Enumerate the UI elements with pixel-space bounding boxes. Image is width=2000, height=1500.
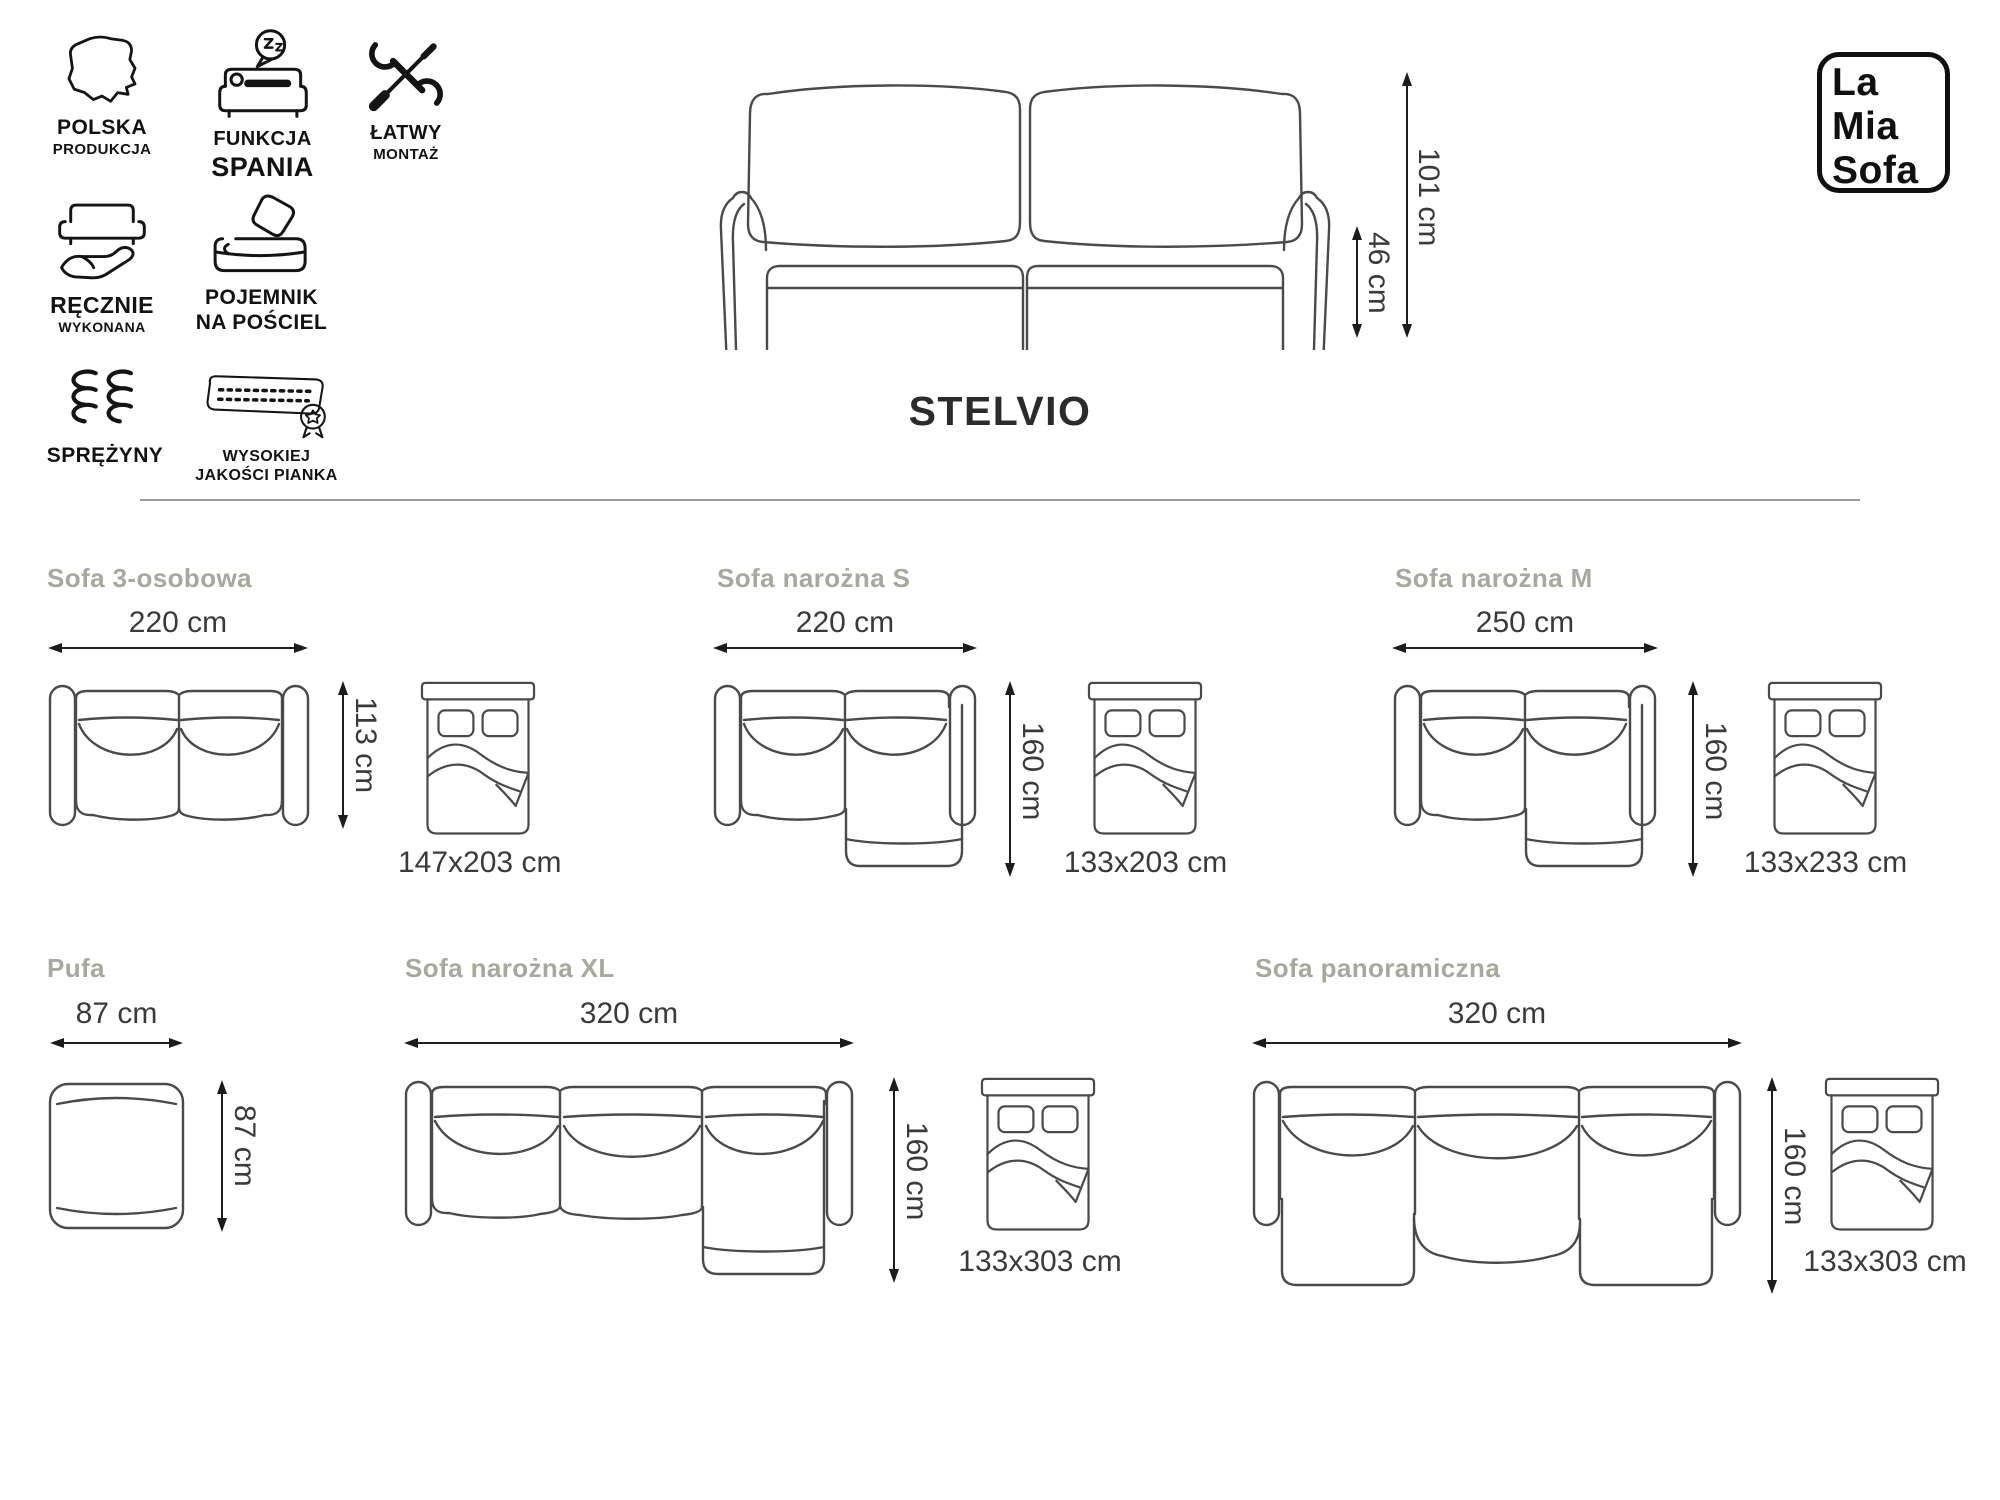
bed-size-label: 147x203 cm xyxy=(398,846,558,880)
sofa-top-view xyxy=(1252,1079,1742,1292)
feature-funkcja-spania: FUNKCJA SPANIA xyxy=(190,26,335,183)
depth-dimension-label: 160 cm xyxy=(1777,1127,1811,1225)
bedding-container-icon xyxy=(207,190,317,280)
width-dimension-arrow xyxy=(50,1037,183,1049)
feature-pojemnik-na-posciel: POJEMNIK NA POŚCIEL xyxy=(184,190,339,336)
product-name: STELVIO xyxy=(800,388,1200,435)
feature-latwy-montaz: ŁATWY MONTAŻ xyxy=(346,32,466,163)
width-dimension-label: 320 cm xyxy=(1252,997,1742,1031)
depth-dimension-label: 160 cm xyxy=(899,1122,933,1220)
width-dimension-arrow xyxy=(404,1037,854,1049)
variant-title-sofa-3-osobowa: Sofa 3-osobowa xyxy=(47,563,252,594)
bed-top-view-icon xyxy=(1085,681,1205,839)
brand-logo: La Mia Sofa xyxy=(1817,52,1950,193)
width-dimension-arrow xyxy=(1252,1037,1742,1049)
seat-height-dimension-label: 46 cm xyxy=(1361,232,1395,314)
brand-logo-line3: Sofa xyxy=(1832,149,1945,193)
pouf-top-view xyxy=(48,1082,185,1230)
bed-top-view-icon xyxy=(1765,681,1885,839)
width-dimension-arrow xyxy=(713,642,977,654)
width-dimension-arrow xyxy=(1392,642,1658,654)
brand-logo-line1: La xyxy=(1832,61,1945,105)
bed-top-view-icon xyxy=(418,681,538,839)
quality-foam-icon xyxy=(187,366,347,442)
variant-title-pufa: Pufa xyxy=(47,953,105,984)
feature-sublabel: MONTAŻ xyxy=(373,146,438,164)
product-spec-sheet: POLSKA PRODUKCJA FUNKCJA SPANIA ŁATWY MO… xyxy=(0,0,2000,1500)
feature-label: RĘCZNIE xyxy=(50,292,154,319)
bed-size-label: 133x303 cm xyxy=(1795,1245,1975,1279)
handmade-icon xyxy=(50,194,154,286)
feature-sublabel: JAKOŚCI PIANKA xyxy=(195,467,338,486)
bed-size-label: 133x233 cm xyxy=(1738,846,1913,880)
feature-sublabel: WYKONANA xyxy=(58,319,145,336)
depth-dimension-label: 87 cm xyxy=(227,1105,261,1187)
feature-wysokiej-jakosci-pianka: WYSOKIEJ JAKOŚCI PIANKA xyxy=(184,366,349,486)
sleep-function-icon xyxy=(209,26,317,122)
width-dimension-label: 220 cm xyxy=(48,606,308,640)
poland-map-icon xyxy=(52,30,152,110)
depth-dimension-label: 160 cm xyxy=(1698,722,1732,820)
bed-size-label: 133x303 cm xyxy=(950,1245,1130,1279)
easy-assembly-tools-icon xyxy=(364,32,448,116)
width-dimension-label: 220 cm xyxy=(713,606,977,640)
sofa-top-view xyxy=(1392,683,1658,873)
feature-label: SPRĘŻYNY xyxy=(47,444,163,469)
depth-dimension-label: 160 cm xyxy=(1015,722,1049,820)
sofa-top-view xyxy=(48,683,310,828)
depth-dimension-label: 113 cm xyxy=(348,697,382,793)
feature-sublabel: PRODUKCJA xyxy=(53,141,152,159)
width-dimension-arrow xyxy=(48,642,308,654)
feature-label: FUNKCJA xyxy=(213,128,311,152)
sofa-front-view xyxy=(690,38,1360,350)
sofa-top-view xyxy=(404,1079,854,1281)
bed-top-view-icon xyxy=(978,1077,1098,1235)
feature-label: ŁATWY xyxy=(370,122,442,146)
width-dimension-label: 320 cm xyxy=(404,997,854,1031)
divider-line xyxy=(140,499,1860,501)
variant-title-sofa-narozna-xl: Sofa narożna XL xyxy=(405,953,615,984)
feature-sublabel: NA POŚCIEL xyxy=(196,311,328,336)
total-height-dimension-label: 101 cm xyxy=(1411,148,1445,246)
springs-icon xyxy=(55,364,155,438)
bed-size-label: 133x203 cm xyxy=(1058,846,1233,880)
feature-label: POLSKA xyxy=(57,116,147,141)
variant-title-sofa-panoramiczna: Sofa panoramiczna xyxy=(1255,953,1500,984)
width-dimension-label: 250 cm xyxy=(1392,606,1658,640)
feature-sublabel: SPANIA xyxy=(211,152,313,184)
variant-title-sofa-narozna-s: Sofa narożna S xyxy=(717,563,910,594)
brand-logo-line2: Mia xyxy=(1832,105,1945,149)
feature-recznie-wykonana: RĘCZNIE WYKONANA xyxy=(38,194,166,336)
feature-label: POJEMNIK xyxy=(205,286,318,311)
width-dimension-label: 87 cm xyxy=(50,997,183,1031)
feature-polska-produkcja: POLSKA PRODUKCJA xyxy=(38,30,166,158)
feature-label: WYSOKIEJ xyxy=(223,448,311,467)
sofa-top-view xyxy=(713,683,977,873)
variant-title-sofa-narozna-m: Sofa narożna M xyxy=(1395,563,1593,594)
bed-top-view-icon xyxy=(1822,1077,1942,1235)
feature-sprezyny: SPRĘŻYNY xyxy=(40,364,170,469)
